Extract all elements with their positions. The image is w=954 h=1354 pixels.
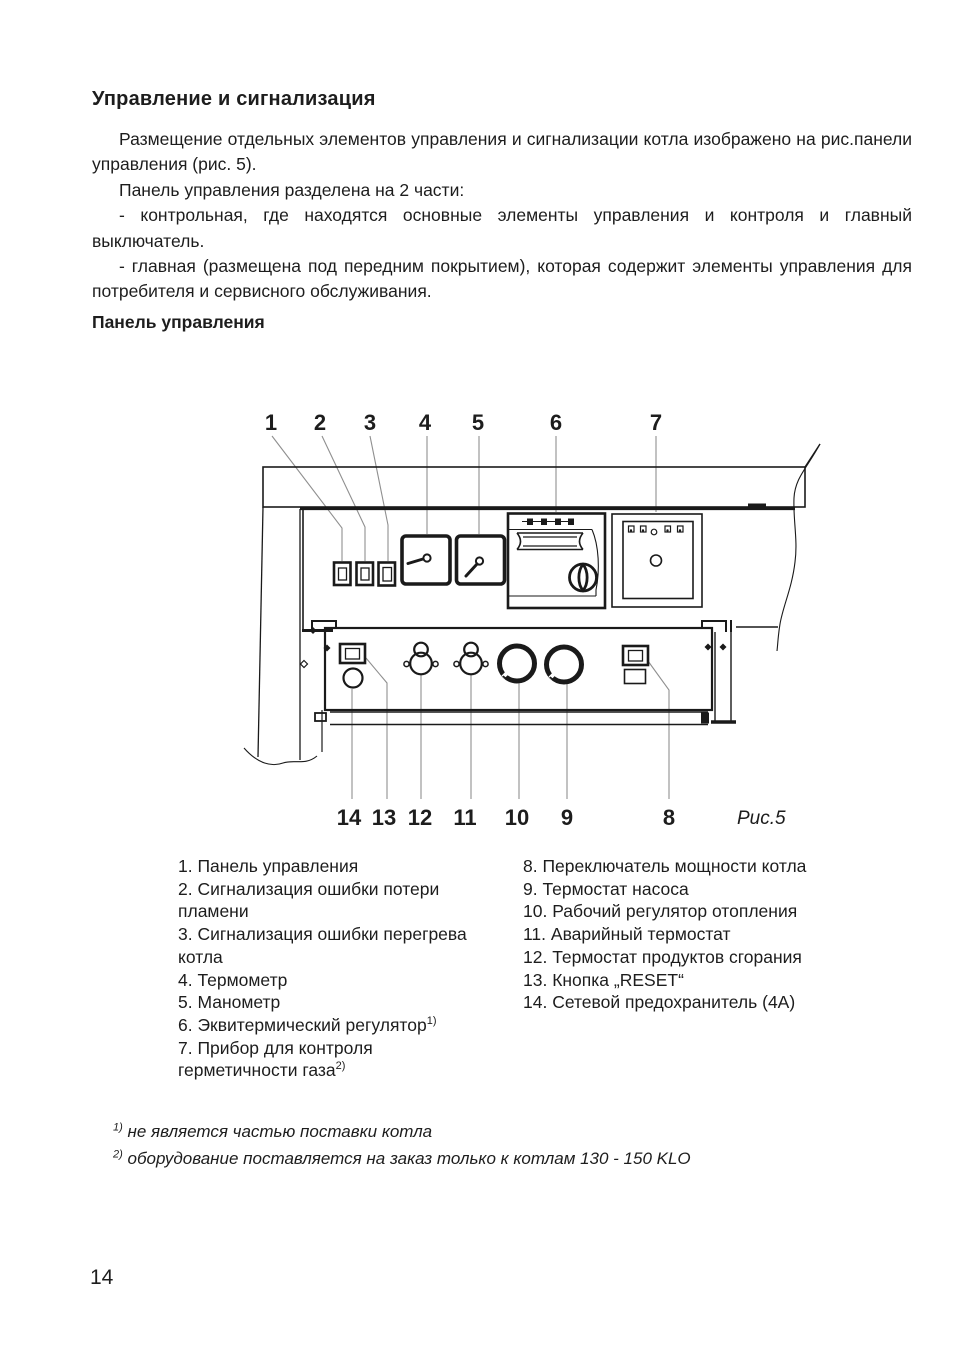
mains-fuse-icon	[344, 669, 363, 688]
main-panel-frame	[301, 620, 737, 725]
callout-10: 10	[505, 805, 529, 830]
legend-item: 10. Рабочий регулятор отопления	[523, 900, 863, 923]
heating-regulator-knob-icon	[500, 646, 535, 681]
legend-item: 5. Манометр	[178, 991, 493, 1014]
callout-9: 9	[561, 805, 573, 830]
emergency-thermostat-icon	[454, 643, 488, 675]
legend-item: 3. Сигнализация ошибки перегрева котла	[178, 923, 493, 968]
thermometer-gauge-icon	[402, 536, 450, 584]
gas-tightness-control-device-icon	[612, 514, 702, 607]
legend-right-column: 8. Переключатель мощности котла 9. Термо…	[523, 855, 863, 1014]
indicator-lamp-icon	[379, 563, 396, 586]
overheat-indicator-lamp-icon	[357, 563, 374, 586]
callout-8: 8	[663, 805, 675, 830]
callout-14: 14	[337, 805, 362, 830]
power-switch-icon	[623, 646, 648, 684]
legend-item: 1. Панель управления	[178, 855, 493, 878]
legend-item: 2. Сигнализация ошибки потери пламени	[178, 878, 493, 923]
footnote: 2) оборудование поставляется на заказ то…	[113, 1145, 833, 1172]
pump-thermostat-knob-icon	[547, 647, 582, 682]
legend-item: 4. Термометр	[178, 969, 493, 992]
legend-item: 11. Аварийный термостат	[523, 923, 863, 946]
callout-1: 1	[265, 410, 277, 435]
page-number: 14	[90, 1266, 113, 1290]
callout-2: 2	[314, 410, 326, 435]
reset-button-icon	[340, 644, 365, 663]
flue-gas-thermostat-icon	[404, 643, 438, 675]
legend-item: 12. Термостат продуктов сгорания	[523, 946, 863, 969]
legend-item: 9. Термостат насоса	[523, 878, 863, 901]
callout-12: 12	[408, 805, 432, 830]
equithermal-regulator-icon	[508, 514, 605, 609]
callout-5: 5	[472, 410, 484, 435]
callout-6: 6	[550, 410, 562, 435]
boiler-frame	[244, 444, 820, 765]
legend-item: 7. Прибор для контроля герметичности газ…	[178, 1037, 493, 1082]
legend-item: 8. Переключатель мощности котла	[523, 855, 863, 878]
callout-4: 4	[419, 410, 432, 435]
flame-loss-indicator-lamp-icon	[334, 563, 351, 586]
footnote: 1) не является частью поставки котла	[113, 1118, 833, 1145]
callout-7: 7	[650, 410, 662, 435]
callout-13: 13	[372, 805, 396, 830]
footnotes: 1) не является частью поставки котла 2) …	[113, 1118, 833, 1172]
callout-11: 11	[453, 805, 476, 830]
callout-3: 3	[364, 410, 376, 435]
legend-item: 14. Сетевой предохранитель (4А)	[523, 991, 863, 1014]
manometer-gauge-icon	[457, 536, 505, 584]
legend-left-column: 1. Панель управления 2. Сигнализация оши…	[178, 855, 493, 1082]
manual-page: Управление и сигнализация Размещение отд…	[0, 0, 954, 1354]
legend-item: 6. Эквитермический регулятор1)	[178, 1014, 493, 1037]
figure-caption: Рис.5	[737, 808, 786, 829]
legend-item: 13. Кнопка „RESET“	[523, 969, 863, 992]
callout-pointer-lines	[272, 436, 669, 799]
